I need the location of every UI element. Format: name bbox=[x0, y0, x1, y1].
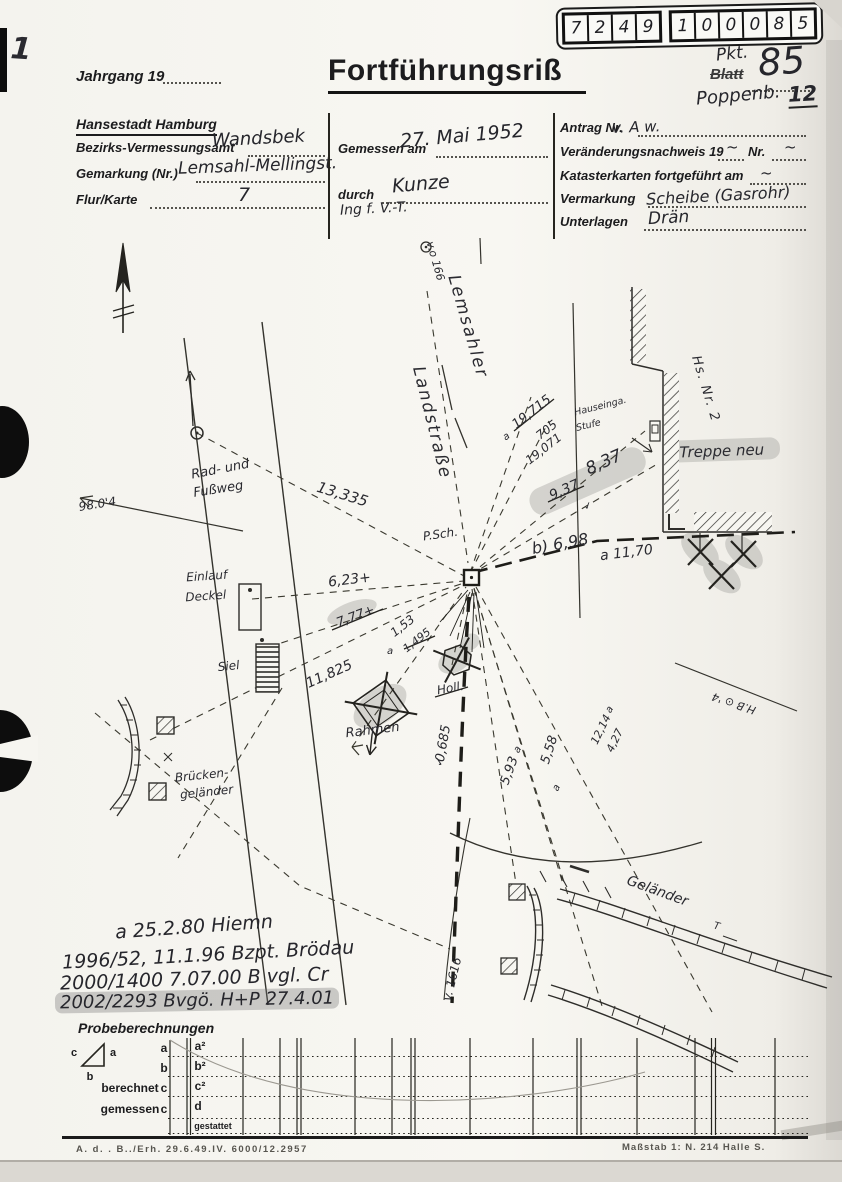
street-name-1: Lemsahler bbox=[443, 273, 492, 381]
label-holl-deleted: Holl. bbox=[436, 679, 465, 697]
label-vo166: v.o 166 bbox=[424, 240, 448, 282]
triangle-label-a: a bbox=[110, 1047, 117, 1059]
check-mark: ✓ bbox=[582, 500, 594, 513]
a-mark: a bbox=[387, 646, 393, 657]
footer-imprint-right: Maßstab 1: N. 214 Halle S. bbox=[622, 1142, 765, 1153]
triangle-label-b: b bbox=[87, 1071, 94, 1083]
measure-558: 5,58 bbox=[538, 734, 561, 766]
north-arrow bbox=[113, 243, 134, 333]
label-fussweg: Fußweg bbox=[192, 478, 244, 501]
row-label-a2: a² bbox=[195, 1039, 206, 1053]
scanned-survey-document: Jahrgang 19 Fortführungsriß 7 2 4 9 1 0 … bbox=[0, 0, 842, 1182]
row-label-berechnet: berechnet bbox=[101, 1081, 158, 1095]
a-mark: a bbox=[501, 431, 512, 444]
measure-593: 5,93 bbox=[498, 755, 522, 787]
label-bruecken: Brücken- bbox=[174, 765, 229, 785]
railing-post-symbol bbox=[509, 884, 525, 900]
measure-13335: 13,335 bbox=[315, 478, 370, 511]
measure-623: 6,23+ bbox=[327, 569, 372, 590]
pencil-curve bbox=[170, 1040, 645, 1101]
a-mark: a bbox=[604, 704, 617, 715]
street-name-2: Landstraße bbox=[408, 364, 455, 481]
row-label-c2: c² bbox=[195, 1079, 206, 1093]
triangle-label-c: c bbox=[71, 1047, 77, 1059]
row-label-c-2: c bbox=[161, 1102, 168, 1116]
railing-post-symbol bbox=[501, 958, 517, 974]
edge-mark bbox=[0, 28, 7, 92]
label-treppe-neu: Treppe neu bbox=[679, 441, 764, 462]
row-label-gestattet: gestattet bbox=[194, 1121, 232, 1131]
label-gelaender2: geländer bbox=[179, 782, 234, 802]
label-einlauf: Einlauf bbox=[186, 567, 230, 584]
row-label-d: d bbox=[194, 1099, 201, 1113]
t-mark: T bbox=[712, 920, 722, 932]
row-label-gemessen: gemessen bbox=[101, 1102, 160, 1116]
label-rahmen: Rahmen bbox=[345, 720, 401, 741]
bottom-rule bbox=[62, 1136, 808, 1139]
measure-11825: 11,825 bbox=[304, 657, 355, 692]
label-siel: Siel bbox=[217, 658, 241, 674]
triangle-symbol bbox=[82, 1044, 104, 1066]
row-label-b2: b² bbox=[194, 1059, 205, 1073]
label-hs-nr-2: Hs. Nr. 2 bbox=[688, 354, 722, 424]
row-label-c: c bbox=[161, 1081, 168, 1095]
page-bottom-edge bbox=[0, 1160, 842, 1182]
measure-a1170: a 11,70 bbox=[599, 542, 654, 564]
hb-mark: H.B ⊙ '4 bbox=[710, 690, 757, 717]
a-mark: a bbox=[512, 744, 525, 755]
boundary-lines bbox=[80, 238, 797, 1005]
row-label-a: a bbox=[161, 1041, 168, 1055]
hole-punch bbox=[0, 406, 29, 478]
building-hs-nr-2 bbox=[630, 287, 772, 532]
corner-mark: 1 bbox=[9, 31, 32, 67]
a-mark: a bbox=[550, 783, 563, 793]
row-label-b: b bbox=[160, 1061, 167, 1075]
bridge-railing bbox=[110, 697, 174, 816]
footer-imprint-left: A. d. . B../Erh. 29.6.49.IV. 6000/12.295… bbox=[76, 1144, 308, 1155]
siel-symbol bbox=[256, 644, 279, 692]
label-deckel: Deckel bbox=[185, 588, 227, 605]
probe-title: Probeberechnungen bbox=[78, 1020, 214, 1036]
probe-table-grid bbox=[82, 1038, 808, 1135]
label-stufe: Stufe bbox=[575, 417, 602, 434]
label-psch: P.Sch. bbox=[422, 525, 459, 544]
label-v1616: v. 1616 bbox=[440, 955, 464, 1002]
label-hauseingang: Hauseinga. bbox=[573, 395, 627, 419]
label-gelaender: Geländer bbox=[625, 873, 692, 910]
corner-mark-symbol bbox=[669, 514, 685, 529]
